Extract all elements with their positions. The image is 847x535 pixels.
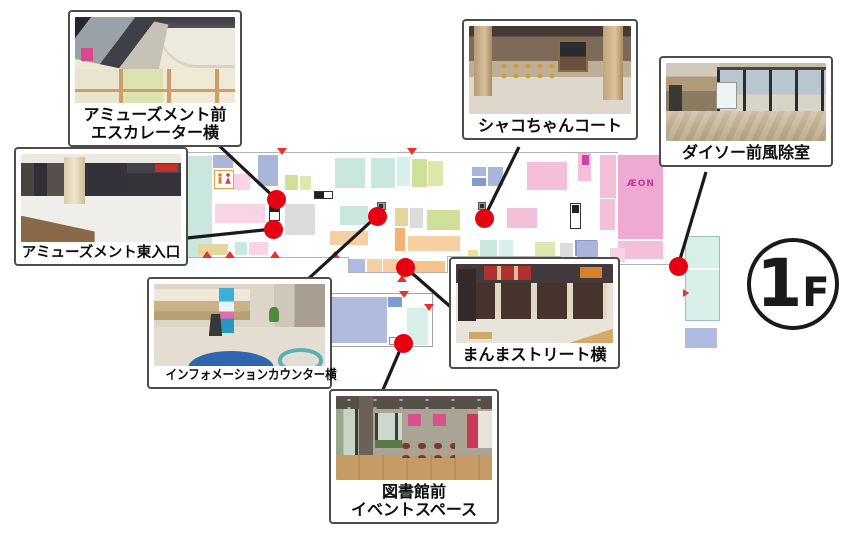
- photo-daiso-vestibule: [666, 63, 826, 141]
- photo-manma-street: [456, 264, 613, 343]
- floor-number: 1: [756, 251, 800, 317]
- elevator-icon: [269, 204, 280, 221]
- photo-information-counter: [154, 284, 325, 366]
- photo-label: まんまストリート横: [456, 346, 613, 364]
- escalator-icon: [478, 202, 486, 210]
- photo-card-daiso-vestibule: ダイソー前風除室: [659, 56, 833, 167]
- photo-amusement-east-entrance: [21, 154, 181, 242]
- photo-label: インフォメーションカウンター横: [154, 369, 325, 384]
- photo-label: アミューズメント前エスカレーター横: [75, 106, 235, 142]
- photo-amusement-escalator: [75, 17, 235, 103]
- restroom-icon: [214, 170, 234, 193]
- floor-map-page: ÆON アミューズメント前エスカレーター横: [0, 0, 847, 535]
- photo-library-event-space: [336, 396, 492, 480]
- photo-shako-chan-court: [469, 26, 631, 114]
- photo-card-library-event-space: 図書館前イベントスペース: [329, 389, 499, 524]
- photo-card-amusement-escalator: アミューズメント前エスカレーター横: [68, 10, 242, 147]
- photo-card-information-counter: インフォメーションカウンター横: [147, 277, 332, 389]
- elevator-icon: [570, 203, 581, 229]
- photo-label: シャコちゃんコート: [469, 117, 631, 135]
- elevator-icon: [314, 191, 333, 199]
- photo-label: 図書館前イベントスペース: [336, 483, 492, 519]
- photo-card-manma-street: まんまストリート横: [449, 257, 620, 369]
- floor-letter: F: [802, 273, 829, 313]
- floor-badge: 1 F: [747, 238, 839, 330]
- aeon-logo: ÆON: [620, 179, 662, 189]
- photo-label: アミューズメント東入口: [21, 245, 181, 261]
- photo-card-shako-chan-court: シャコちゃんコート: [462, 19, 638, 140]
- photo-card-amusement-east-entrance: アミューズメント東入口: [14, 147, 188, 266]
- escalator-icon: [377, 202, 386, 210]
- photo-label: ダイソー前風除室: [666, 144, 826, 162]
